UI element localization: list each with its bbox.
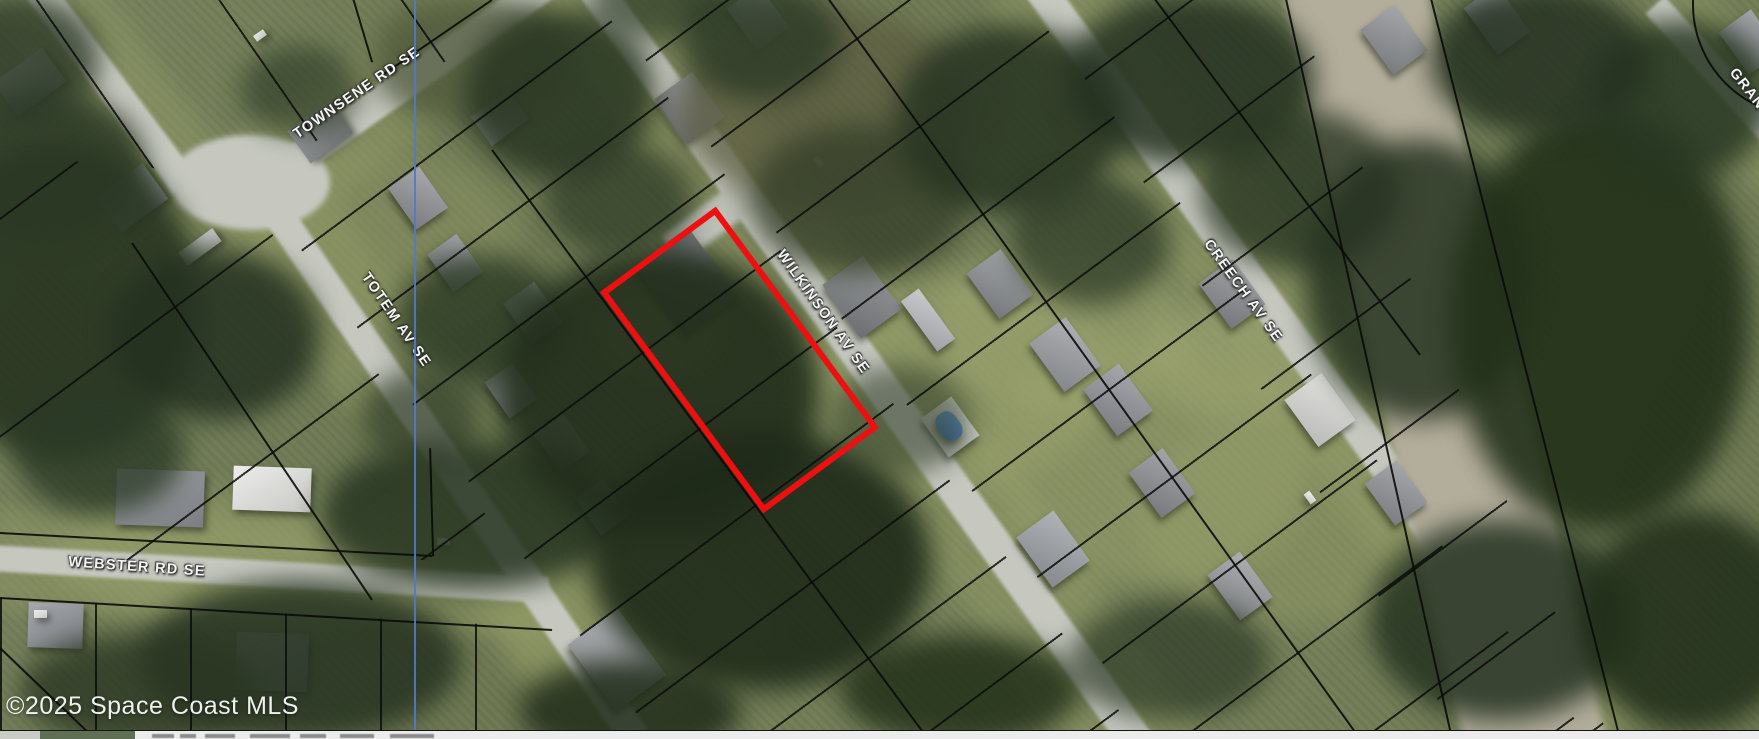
strip-text-smudge — [300, 734, 326, 738]
strip-text-smudge — [250, 734, 290, 738]
aerial-map: TOWNSENE RD SE TOTEM AV SE WEBSTER RD SE… — [0, 0, 1759, 739]
strip-text-smudge — [180, 734, 196, 738]
street-label-gran: GRAN — [1726, 65, 1759, 113]
bottom-strip — [0, 730, 1759, 739]
street-label-townsene: TOWNSENE RD SE — [291, 44, 424, 142]
street-labels-layer: TOWNSENE RD SE TOTEM AV SE WEBSTER RD SE… — [0, 0, 1759, 739]
street-label-webster: WEBSTER RD SE — [68, 554, 207, 580]
blue-boundary-line — [414, 0, 416, 730]
strip-text-smudge — [390, 734, 434, 738]
strip-text-smudge — [205, 734, 235, 738]
strip-segment — [40, 731, 135, 739]
street-label-creech: CREECH AV SE — [1200, 237, 1285, 346]
strip-text-smudge — [152, 734, 174, 738]
copyright-watermark: ©2025 Space Coast MLS — [6, 692, 299, 721]
strip-segment — [0, 731, 40, 739]
street-label-totem: TOTEM AV SE — [358, 270, 434, 370]
strip-text-smudge — [340, 734, 374, 738]
